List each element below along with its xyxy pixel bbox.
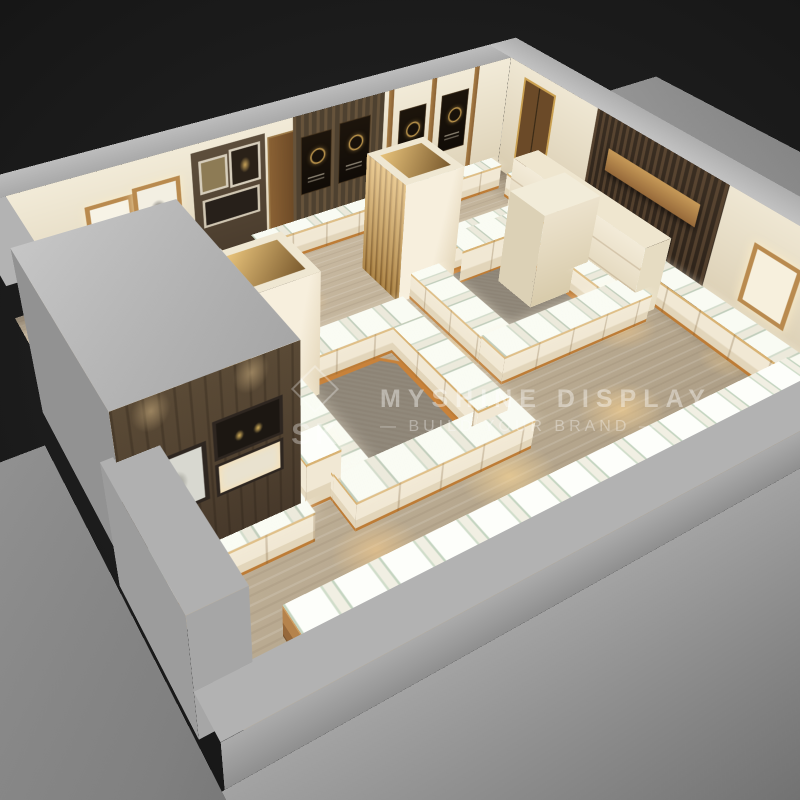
watermark-tagline-text: — BUILD YOUR BRAND —	[380, 418, 712, 436]
watermark-text-block: MYSHINE DISPLAY — BUILD YOUR BRAND —	[380, 385, 712, 436]
jewelry-poster	[437, 88, 469, 153]
watermark-brand-text: MYSHINE DISPLAY	[380, 385, 712, 414]
watermark-logo-text: SK	[268, 418, 364, 452]
jewelry-poster	[301, 129, 332, 196]
watermark: SK MYSHINE DISPLAY — BUILD YOUR BRAND —	[268, 368, 712, 452]
watermark-logo: SK	[268, 368, 364, 452]
jewelry-showroom-render: SK MYSHINE DISPLAY — BUILD YOUR BRAND —	[0, 0, 800, 800]
diamond-logo-icon	[291, 365, 339, 413]
